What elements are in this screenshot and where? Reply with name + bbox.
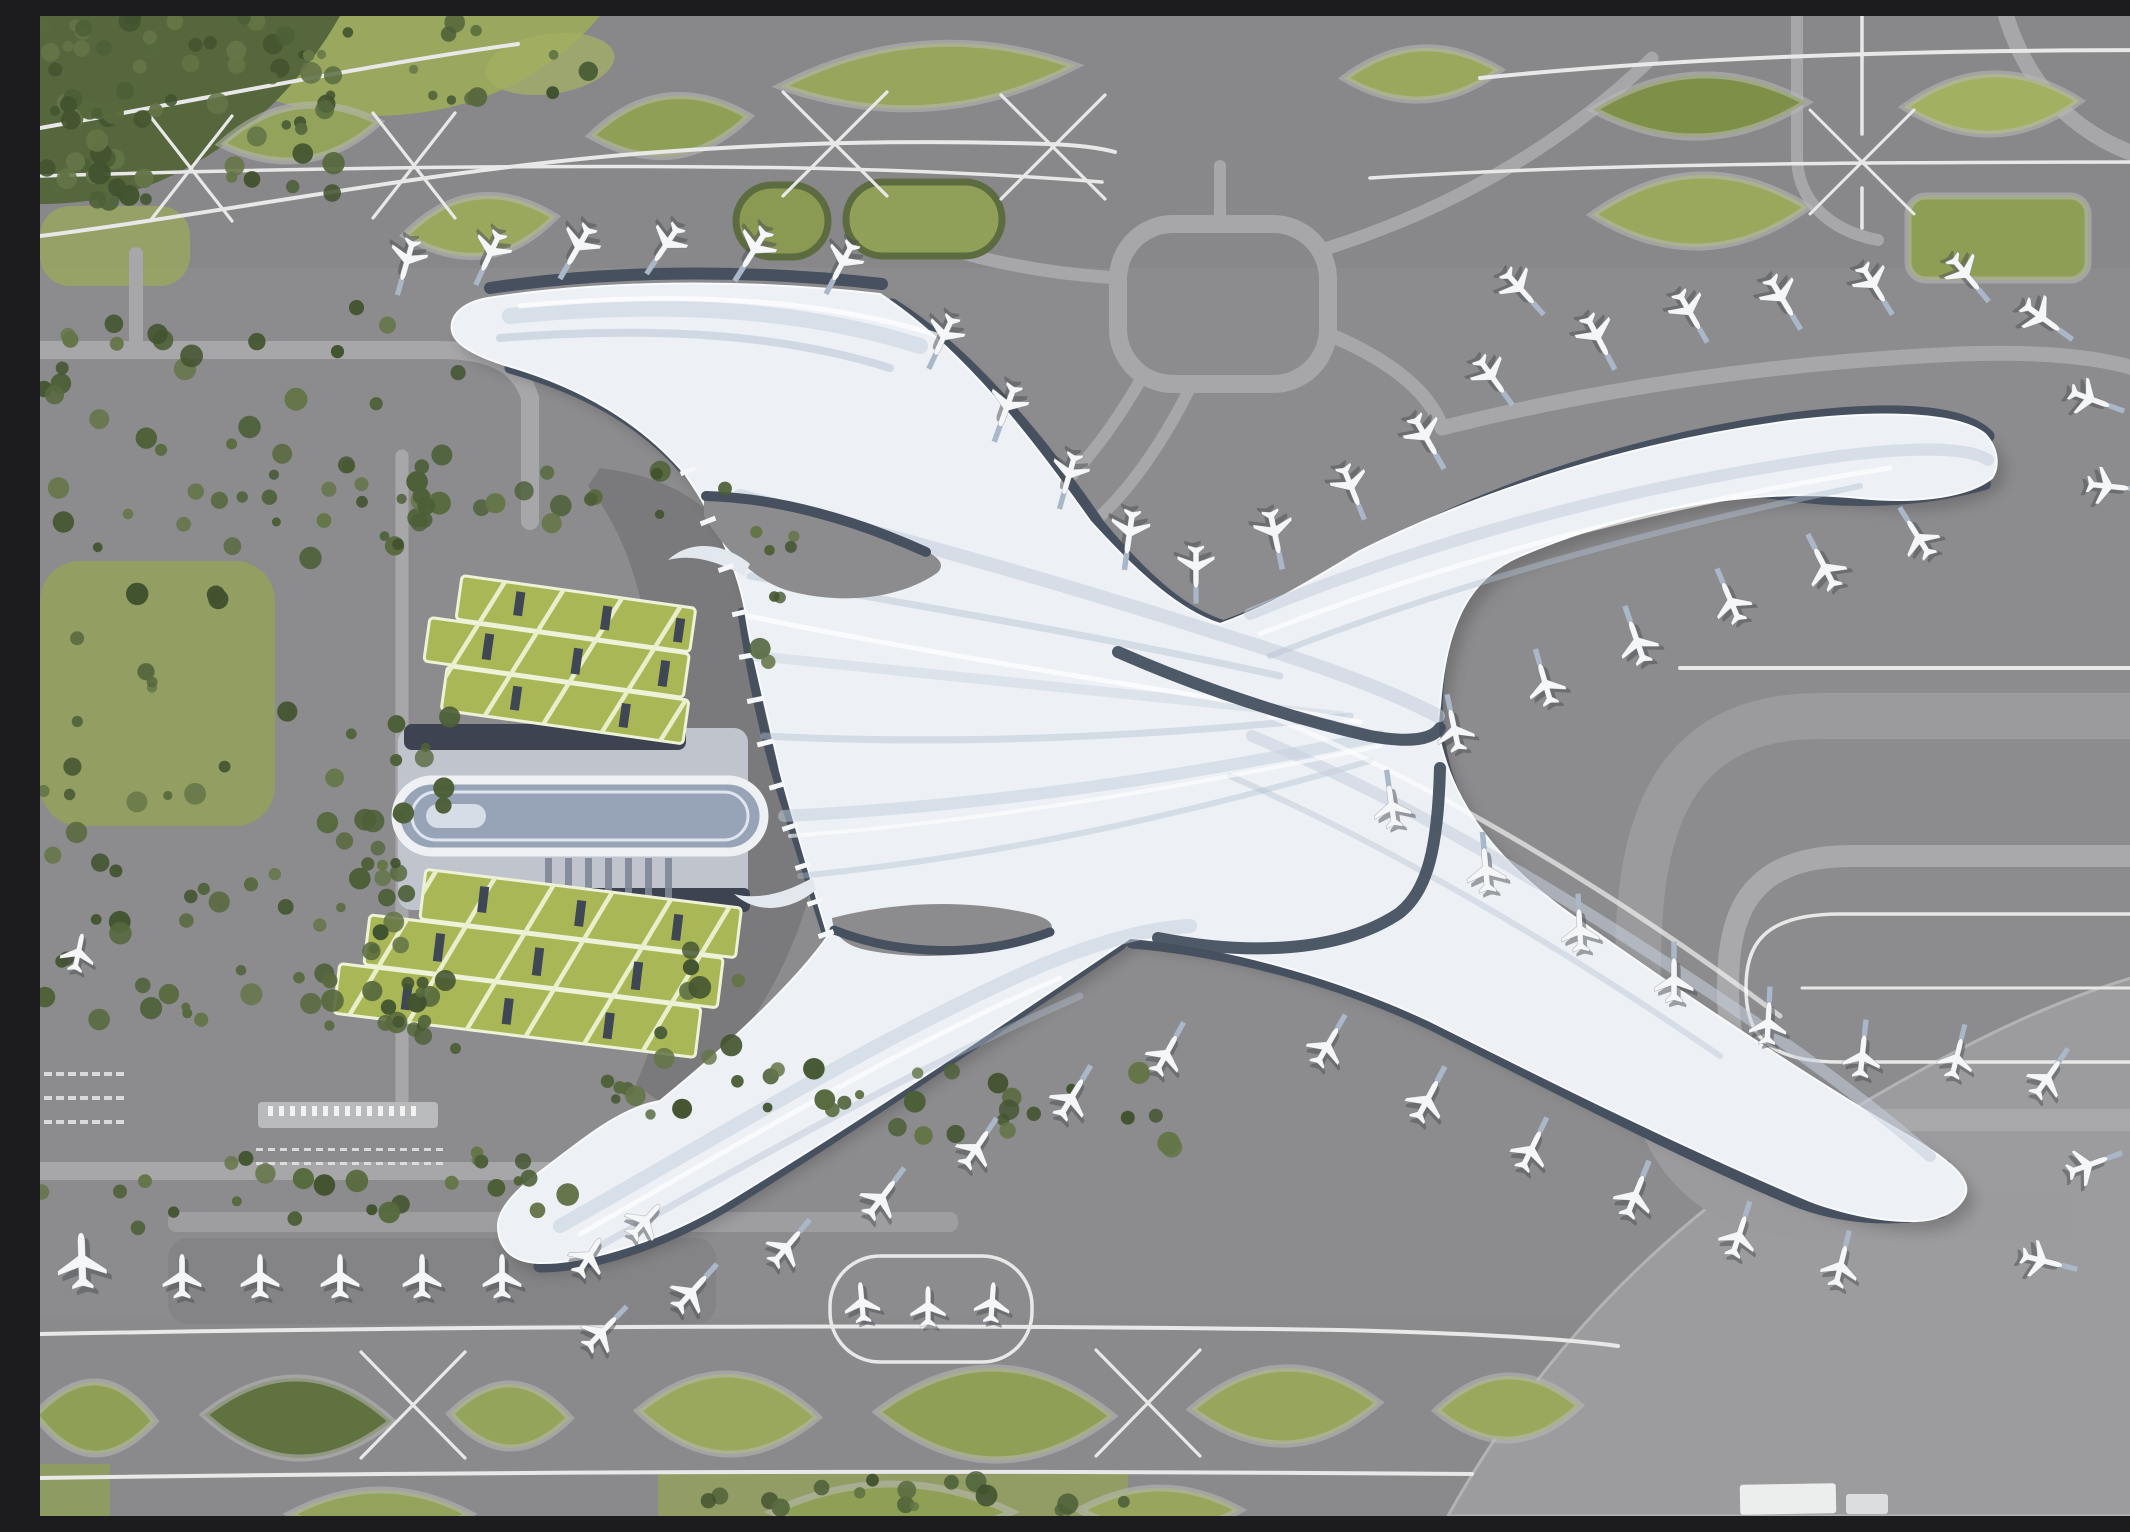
tree-icon <box>224 1156 238 1170</box>
tree-icon <box>468 87 488 107</box>
tree-icon <box>140 997 162 1019</box>
tree-icon <box>147 677 158 688</box>
tree-icon <box>138 1174 152 1188</box>
tree-icon <box>159 984 179 1004</box>
tree-icon <box>417 977 429 989</box>
tree-icon <box>203 36 216 49</box>
toll-booth <box>312 1106 317 1116</box>
tree-icon <box>521 1170 538 1187</box>
parking-dash <box>388 1162 395 1165</box>
tree-icon <box>331 345 344 358</box>
airport-scene <box>40 16 2130 1516</box>
tree-icon <box>785 541 797 553</box>
tree-icon <box>247 126 267 146</box>
tree-icon <box>86 129 108 151</box>
parking-dash <box>364 1148 371 1151</box>
tree-icon <box>732 974 746 988</box>
tree-icon <box>163 791 172 800</box>
tree-icon <box>189 38 203 52</box>
tree-icon <box>415 748 434 767</box>
tree-icon <box>155 444 167 456</box>
jet-bridge <box>1193 587 1198 604</box>
tree-icon <box>136 427 157 448</box>
tree-icon <box>48 477 69 498</box>
tree-icon <box>625 1085 646 1106</box>
tree-icon <box>209 891 230 912</box>
tree-icon <box>451 365 466 380</box>
parking-dash <box>400 1162 407 1165</box>
tree-icon <box>515 481 534 500</box>
tree-icon <box>814 1480 830 1496</box>
tree-icon <box>303 50 315 62</box>
tree-icon <box>355 477 369 491</box>
tree-icon <box>701 1493 716 1508</box>
parking-dash <box>376 1162 383 1165</box>
parking-dash <box>340 1162 347 1165</box>
tree-icon <box>184 783 206 805</box>
tree-icon <box>288 1211 303 1226</box>
tree-icon <box>73 40 90 57</box>
tree-icon <box>93 542 103 552</box>
tree-icon <box>683 959 699 975</box>
tree-icon <box>194 1013 208 1027</box>
tree-icon <box>373 924 389 940</box>
tree-icon <box>168 1206 179 1217</box>
tree-icon <box>415 988 425 998</box>
tree-icon <box>322 152 344 174</box>
tree-icon <box>62 332 78 348</box>
tree-icon <box>701 1049 716 1064</box>
green-island <box>846 182 1002 256</box>
tree-icon <box>803 1058 825 1080</box>
tree-icon <box>248 333 265 350</box>
tree-icon <box>182 55 200 73</box>
jet-bridge <box>1575 893 1581 910</box>
parking-dash <box>292 1148 299 1151</box>
tree-icon <box>226 438 237 449</box>
tree-icon <box>904 1091 926 1113</box>
tree-icon <box>295 123 307 135</box>
gtc-oval-core <box>426 804 486 828</box>
tree-icon <box>180 345 203 368</box>
toll-booth <box>367 1106 372 1116</box>
parking-dash <box>436 1148 443 1151</box>
tree-icon <box>119 185 140 206</box>
tree-icon <box>123 509 134 520</box>
tree-icon <box>278 899 294 915</box>
tree-icon <box>240 983 262 1005</box>
toll-booth <box>356 1106 361 1116</box>
tree-icon <box>814 1089 835 1110</box>
tree-icon <box>947 1125 965 1143</box>
tree-icon <box>897 1481 916 1500</box>
tree-icon <box>362 942 380 960</box>
tree-icon <box>651 468 663 480</box>
parking-dash <box>328 1148 335 1151</box>
grass-field <box>40 1464 110 1516</box>
tree-icon <box>750 526 762 538</box>
tree-icon <box>91 853 109 871</box>
tree-icon <box>179 913 194 928</box>
tree-icon <box>102 102 124 124</box>
tree-icon <box>1121 1111 1135 1125</box>
parking-dash <box>44 1120 52 1124</box>
parking-dash <box>92 1096 100 1100</box>
toll-booth <box>389 1106 394 1116</box>
tree-icon <box>866 1474 879 1487</box>
tree-icon <box>370 397 383 410</box>
toll-booth <box>378 1106 383 1116</box>
tree-icon <box>165 94 177 106</box>
tree-icon <box>232 1196 242 1206</box>
tree-icon <box>321 989 344 1012</box>
parking-dash <box>316 1162 323 1165</box>
tree-icon <box>60 96 77 113</box>
tree-icon <box>1149 1109 1163 1123</box>
tree-icon <box>91 914 102 925</box>
tree-icon <box>393 1016 405 1028</box>
parking-dash <box>352 1162 359 1165</box>
tree-icon <box>188 483 204 499</box>
tree-icon <box>75 20 92 37</box>
parking-dash <box>352 1148 359 1151</box>
tree-icon <box>317 50 326 59</box>
toll-booth <box>411 1106 416 1116</box>
tree-icon <box>269 470 279 480</box>
parking-dash <box>104 1072 112 1076</box>
parking-dash <box>436 1162 443 1165</box>
tree-icon <box>374 870 391 887</box>
tree-icon <box>398 885 415 902</box>
tree-icon <box>226 171 237 182</box>
tree-icon <box>272 444 292 464</box>
tree-icon <box>688 976 711 999</box>
parking-dash <box>292 1162 299 1165</box>
tree-icon <box>116 82 134 100</box>
tree-icon <box>208 589 228 609</box>
tree-icon <box>57 169 78 190</box>
tree-icon <box>149 45 159 55</box>
tree-icon <box>654 1048 675 1069</box>
parking-dash <box>104 1120 112 1124</box>
tree-icon <box>317 812 338 833</box>
tree-icon <box>110 337 124 351</box>
tree-icon <box>133 110 151 128</box>
toll-booth <box>323 1106 328 1116</box>
tree-icon <box>72 716 83 727</box>
tree-icon <box>445 1176 459 1190</box>
tree-icon <box>435 797 451 813</box>
tree-icon <box>770 1062 785 1077</box>
tree-icon <box>362 810 385 833</box>
jet-bridge <box>1767 986 1773 1003</box>
parking-dash <box>44 1096 52 1100</box>
tree-icon <box>772 1499 790 1516</box>
tree-icon <box>837 1096 851 1110</box>
tree-icon <box>414 1027 432 1045</box>
tree-icon <box>133 59 147 73</box>
tree-icon <box>314 1174 336 1196</box>
tree-icon <box>322 973 337 988</box>
tree-icon <box>293 143 314 164</box>
tree-icon <box>349 300 364 315</box>
tree-icon <box>655 510 664 519</box>
aerial-image <box>40 16 2130 1516</box>
tree-icon <box>409 65 418 74</box>
tree-icon <box>53 511 74 532</box>
tree-icon <box>276 26 295 45</box>
tree-icon <box>379 317 396 334</box>
toll-booth <box>279 1106 284 1116</box>
tree-icon <box>450 1043 461 1054</box>
tree-icon <box>126 583 148 605</box>
parking-dash <box>80 1096 88 1100</box>
tree-icon <box>126 791 147 812</box>
tree-icon <box>56 362 69 375</box>
tree-icon <box>470 25 481 36</box>
tree-icon <box>474 1155 488 1169</box>
tree-icon <box>244 171 261 188</box>
tree-icon <box>336 832 353 849</box>
tree-icon <box>682 942 699 959</box>
parking-dash <box>316 1148 323 1151</box>
tree-icon <box>579 62 598 81</box>
parking-dash <box>412 1162 419 1165</box>
tree-icon <box>343 27 354 38</box>
tree-icon <box>392 937 409 954</box>
tree-icon <box>362 981 382 1001</box>
tree-icon <box>70 631 84 645</box>
tree-icon <box>300 993 321 1014</box>
service-building <box>1846 1494 1888 1514</box>
tree-icon <box>282 120 292 130</box>
tree-icon <box>488 1179 506 1197</box>
tree-icon <box>377 1015 393 1031</box>
tree-icon <box>549 50 559 60</box>
tree-icon <box>601 1075 614 1088</box>
toll-booth <box>290 1106 295 1116</box>
tree-icon <box>788 531 799 542</box>
tree-icon <box>417 497 435 515</box>
tree-icon <box>109 864 122 877</box>
parking-dash <box>68 1072 76 1076</box>
tree-icon <box>441 26 456 41</box>
tree-icon <box>910 1502 920 1512</box>
tree-icon <box>764 545 775 556</box>
tree-icon <box>198 883 210 895</box>
tree-icon <box>346 1170 369 1193</box>
parking-dash <box>56 1096 64 1100</box>
tree-icon <box>1128 1062 1150 1084</box>
tree-icon <box>105 315 124 334</box>
tree-icon <box>540 466 554 480</box>
tree-icon <box>761 655 775 669</box>
tree-icon <box>63 41 74 52</box>
tree-icon <box>44 847 61 864</box>
tree-icon <box>439 706 460 727</box>
tree-icon <box>431 445 452 466</box>
tree-icon <box>326 91 336 101</box>
tree-icon <box>346 728 357 739</box>
tree-icon <box>228 56 246 74</box>
parking-dash <box>104 1096 112 1100</box>
tree-icon <box>944 1475 959 1490</box>
parking-dash <box>56 1072 64 1076</box>
tree-icon <box>277 701 297 721</box>
tree-icon <box>211 492 228 509</box>
tree-icon <box>377 860 388 871</box>
tree-icon <box>313 918 326 931</box>
tree-icon <box>888 1118 907 1137</box>
grass-field <box>40 561 275 826</box>
tree-icon <box>349 868 371 890</box>
tree-icon <box>672 1099 692 1119</box>
tree-icon <box>390 858 400 868</box>
parking-dash <box>412 1148 419 1151</box>
parking-dash <box>364 1162 371 1165</box>
tree-icon <box>135 978 151 994</box>
tree-icon <box>323 184 341 202</box>
green-island <box>1908 196 2088 280</box>
tree-icon <box>769 591 780 602</box>
parking-dash <box>304 1148 311 1151</box>
tree-icon <box>293 1168 314 1189</box>
tree-icon <box>645 1109 655 1119</box>
parking-dash <box>92 1120 100 1124</box>
tree-icon <box>224 537 242 555</box>
tree-icon <box>89 191 106 208</box>
tree-icon <box>718 482 732 496</box>
tree-icon <box>336 903 346 913</box>
tree-icon <box>515 1153 531 1169</box>
toll-booth <box>268 1106 273 1116</box>
tree-icon <box>415 459 430 474</box>
tree-icon <box>184 890 198 904</box>
tree-icon <box>999 1122 1015 1138</box>
tree-icon <box>613 1081 626 1094</box>
tree-icon <box>914 1126 933 1145</box>
tree-icon <box>418 1015 431 1028</box>
tree-icon <box>299 547 321 569</box>
tree-icon <box>763 1103 773 1113</box>
tree-icon <box>720 1034 742 1056</box>
tree-icon <box>207 93 229 115</box>
tree-icon <box>61 110 81 130</box>
tree-icon <box>397 494 407 504</box>
tree-icon <box>140 193 152 205</box>
toll-booth <box>301 1106 306 1116</box>
tree-icon <box>912 1067 923 1078</box>
parking-dash <box>424 1162 431 1165</box>
tree-icon <box>999 1100 1019 1120</box>
parking-dash <box>304 1162 311 1165</box>
tree-icon <box>236 965 247 976</box>
service-building <box>1740 1483 1837 1515</box>
tree-icon <box>447 95 456 104</box>
parking-dash <box>92 1072 100 1076</box>
tree-icon <box>143 31 157 45</box>
tree-icon <box>556 1183 579 1206</box>
tree-icon <box>611 1094 621 1104</box>
tree-icon <box>731 1075 744 1088</box>
tree-icon <box>317 513 332 528</box>
tree-icon <box>393 809 404 820</box>
tree-icon <box>89 409 109 429</box>
tree-icon <box>378 889 396 907</box>
tree-icon <box>96 40 111 55</box>
tree-icon <box>1118 1496 1130 1508</box>
tree-icon <box>131 1221 146 1236</box>
tree-icon <box>855 1090 864 1099</box>
toll-booth <box>334 1106 339 1116</box>
tree-icon <box>88 1009 110 1031</box>
parking-dash <box>328 1162 335 1165</box>
tree-icon <box>979 1484 989 1494</box>
tree-icon <box>113 1185 127 1199</box>
tree-icon <box>324 66 342 84</box>
tree-icon <box>109 922 132 945</box>
tree-icon <box>321 482 336 497</box>
tree-icon <box>66 822 87 843</box>
parking-dash <box>280 1148 287 1151</box>
tree-icon <box>176 517 191 532</box>
tree-icon <box>41 43 60 62</box>
tree-icon <box>237 491 248 502</box>
tree-icon <box>1157 1132 1180 1155</box>
tree-icon <box>48 63 62 77</box>
parking-dash <box>268 1148 275 1151</box>
tree-icon <box>530 1203 546 1219</box>
tree-icon <box>550 495 572 517</box>
tree-icon <box>238 416 260 438</box>
toll-booth <box>345 1106 350 1116</box>
tree-icon <box>64 789 75 800</box>
tree-icon <box>315 100 334 119</box>
tree-icon <box>402 977 415 990</box>
parking-dash <box>424 1148 431 1151</box>
tree-icon <box>50 106 60 116</box>
tree-icon <box>654 1026 667 1039</box>
tree-icon <box>390 754 402 766</box>
tree-icon <box>1027 1107 1041 1121</box>
tree-icon <box>149 103 163 117</box>
tree-icon <box>388 715 406 733</box>
tree-icon <box>293 972 305 984</box>
tree-icon <box>262 490 277 505</box>
tree-icon <box>371 841 386 856</box>
tree-icon <box>266 72 278 84</box>
tree-icon <box>584 493 597 506</box>
tree-icon <box>324 1020 334 1030</box>
tree-icon <box>238 1151 253 1166</box>
tree-icon <box>286 180 299 193</box>
tree-icon <box>182 1008 192 1018</box>
tree-icon <box>428 91 438 101</box>
tree-icon <box>66 152 85 171</box>
tree-icon <box>366 1204 377 1215</box>
parking-dash <box>256 1148 263 1151</box>
tree-icon <box>944 1064 960 1080</box>
tree-icon <box>269 868 281 880</box>
tree-icon <box>854 1487 865 1498</box>
parking-dash <box>80 1120 88 1124</box>
parking-dash <box>400 1148 407 1151</box>
tree-icon <box>244 877 258 891</box>
tree-icon <box>356 496 368 508</box>
tree-icon <box>338 456 355 473</box>
tree-icon <box>300 62 322 84</box>
tree-icon <box>255 1163 275 1183</box>
